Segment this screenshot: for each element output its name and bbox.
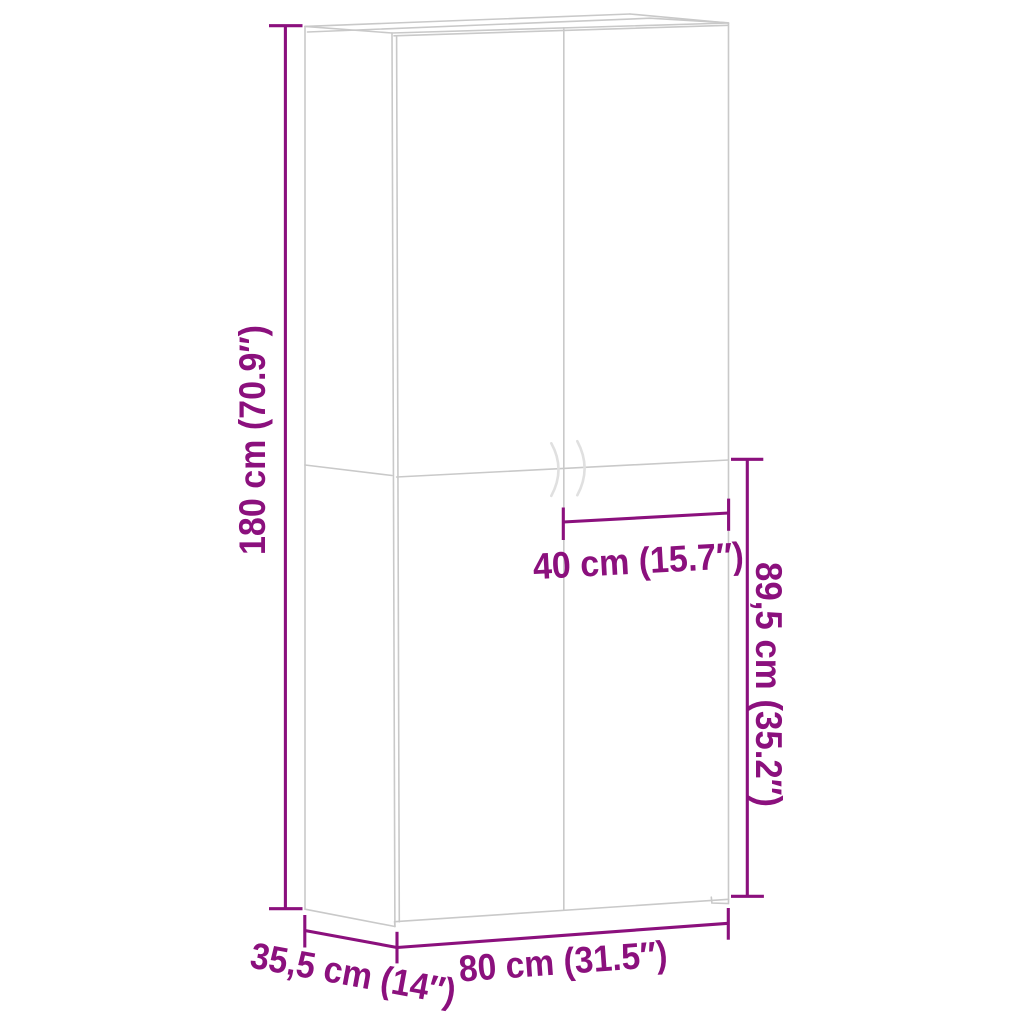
svg-text:180 cm (70.9″): 180 cm (70.9″) bbox=[232, 325, 273, 555]
svg-text:89,5 cm (35.2″): 89,5 cm (35.2″) bbox=[748, 562, 789, 807]
